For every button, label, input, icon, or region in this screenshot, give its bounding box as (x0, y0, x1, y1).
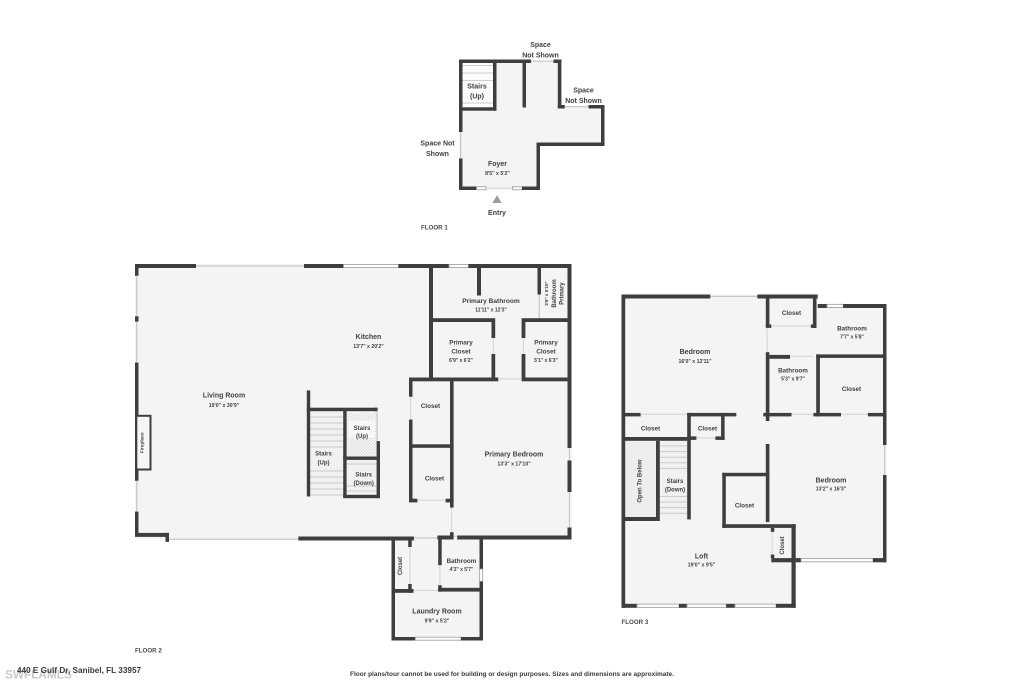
svg-text:8'5" x 5'2": 8'5" x 5'2" (485, 171, 510, 177)
svg-text:Floor plans/tour cannot be use: Floor plans/tour cannot be used for buil… (350, 671, 674, 678)
svg-text:Bathroom: Bathroom (552, 279, 558, 307)
svg-text:Closet: Closet (782, 310, 802, 317)
svg-text:Bedroom: Bedroom (816, 478, 847, 485)
svg-text:Shown: Shown (426, 151, 449, 158)
svg-text:(Up): (Up) (318, 461, 330, 467)
svg-text:440 E Gulf Dr, Sanibel, FL 339: 440 E Gulf Dr, Sanibel, FL 33957 (17, 666, 142, 675)
svg-text:(Up): (Up) (356, 434, 368, 440)
svg-text:Stairs: Stairs (355, 473, 372, 479)
svg-text:Primary: Primary (534, 340, 558, 347)
svg-text:Not Shown: Not Shown (565, 98, 602, 105)
svg-text:4'3" x 5'7": 4'3" x 5'7" (450, 567, 474, 573)
svg-text:Closet: Closet (398, 557, 404, 575)
svg-text:Laundry Room: Laundry Room (412, 609, 461, 616)
svg-text:13'7" x 20'2": 13'7" x 20'2" (353, 344, 384, 350)
svg-text:Kitchen: Kitchen (356, 334, 382, 341)
svg-text:Closet: Closet (536, 349, 556, 356)
svg-text:Space: Space (530, 42, 551, 49)
svg-text:Primary Bathroom: Primary Bathroom (462, 298, 520, 305)
svg-text:Bedroom: Bedroom (680, 349, 711, 356)
svg-text:Closet: Closet (451, 349, 471, 356)
svg-text:Primary: Primary (449, 340, 473, 347)
svg-text:6'9" x 6'2": 6'9" x 6'2" (449, 358, 473, 364)
svg-text:19'0" x 30'9": 19'0" x 30'9" (209, 403, 240, 409)
svg-text:Closet: Closet (421, 403, 441, 410)
svg-text:(Down): (Down) (354, 481, 374, 487)
svg-text:Bathroom: Bathroom (778, 368, 808, 375)
svg-text:Loft: Loft (695, 554, 709, 561)
svg-text:FLOOR 2: FLOOR 2 (135, 648, 162, 655)
svg-text:13'2" x 16'3": 13'2" x 16'3" (816, 487, 847, 493)
svg-text:Stairs: Stairs (467, 84, 487, 91)
svg-text:Space: Space (573, 88, 594, 95)
svg-text:Bathroom: Bathroom (837, 326, 867, 333)
svg-text:Closet: Closet (698, 426, 718, 433)
svg-text:7'7" x 5'8": 7'7" x 5'8" (840, 335, 864, 341)
svg-text:Closet: Closet (842, 386, 862, 393)
svg-text:11'11" x 12'3": 11'11" x 12'3" (475, 308, 507, 314)
svg-text:5'1" x 6'3": 5'1" x 6'3" (534, 358, 558, 364)
svg-text:Foyer: Foyer (488, 161, 507, 168)
svg-text:FLOOR 1: FLOOR 1 (421, 225, 448, 232)
svg-text:19'0" x 9'5": 19'0" x 9'5" (688, 563, 716, 569)
svg-text:Stairs: Stairs (315, 452, 332, 458)
svg-text:Closet: Closet (425, 476, 445, 483)
svg-text:Stairs: Stairs (354, 426, 371, 432)
svg-text:Primary Bedroom: Primary Bedroom (485, 452, 544, 459)
svg-text:Living Room: Living Room (203, 393, 245, 400)
svg-text:Closet: Closet (780, 536, 786, 554)
svg-text:(Down): (Down) (665, 488, 685, 494)
svg-text:Primary: Primary (559, 282, 565, 305)
svg-text:Closet: Closet (641, 426, 661, 433)
svg-text:(Up): (Up) (470, 93, 484, 100)
svg-text:Bathroom: Bathroom (447, 558, 477, 565)
svg-text:16'0" x 12'11": 16'0" x 12'11" (678, 359, 712, 365)
svg-text:13'3" x 17'10": 13'3" x 17'10" (497, 462, 531, 468)
svg-text:Stairs: Stairs (667, 479, 684, 485)
svg-text:Fireplace: Fireplace (140, 432, 146, 453)
svg-text:Entry: Entry (488, 210, 506, 217)
svg-text:Not Shown: Not Shown (522, 53, 559, 60)
svg-text:3'8" x 5'10": 3'8" x 5'10" (544, 281, 549, 305)
svg-text:9'9" x 5'2": 9'9" x 5'2" (425, 619, 450, 625)
svg-text:FLOOR 3: FLOOR 3 (622, 619, 649, 626)
svg-text:Closet: Closet (735, 503, 755, 510)
svg-text:5'3" x 9'7": 5'3" x 9'7" (781, 377, 805, 383)
svg-text:Open To Below: Open To Below (638, 459, 644, 503)
svg-text:Space Not: Space Not (420, 141, 455, 148)
